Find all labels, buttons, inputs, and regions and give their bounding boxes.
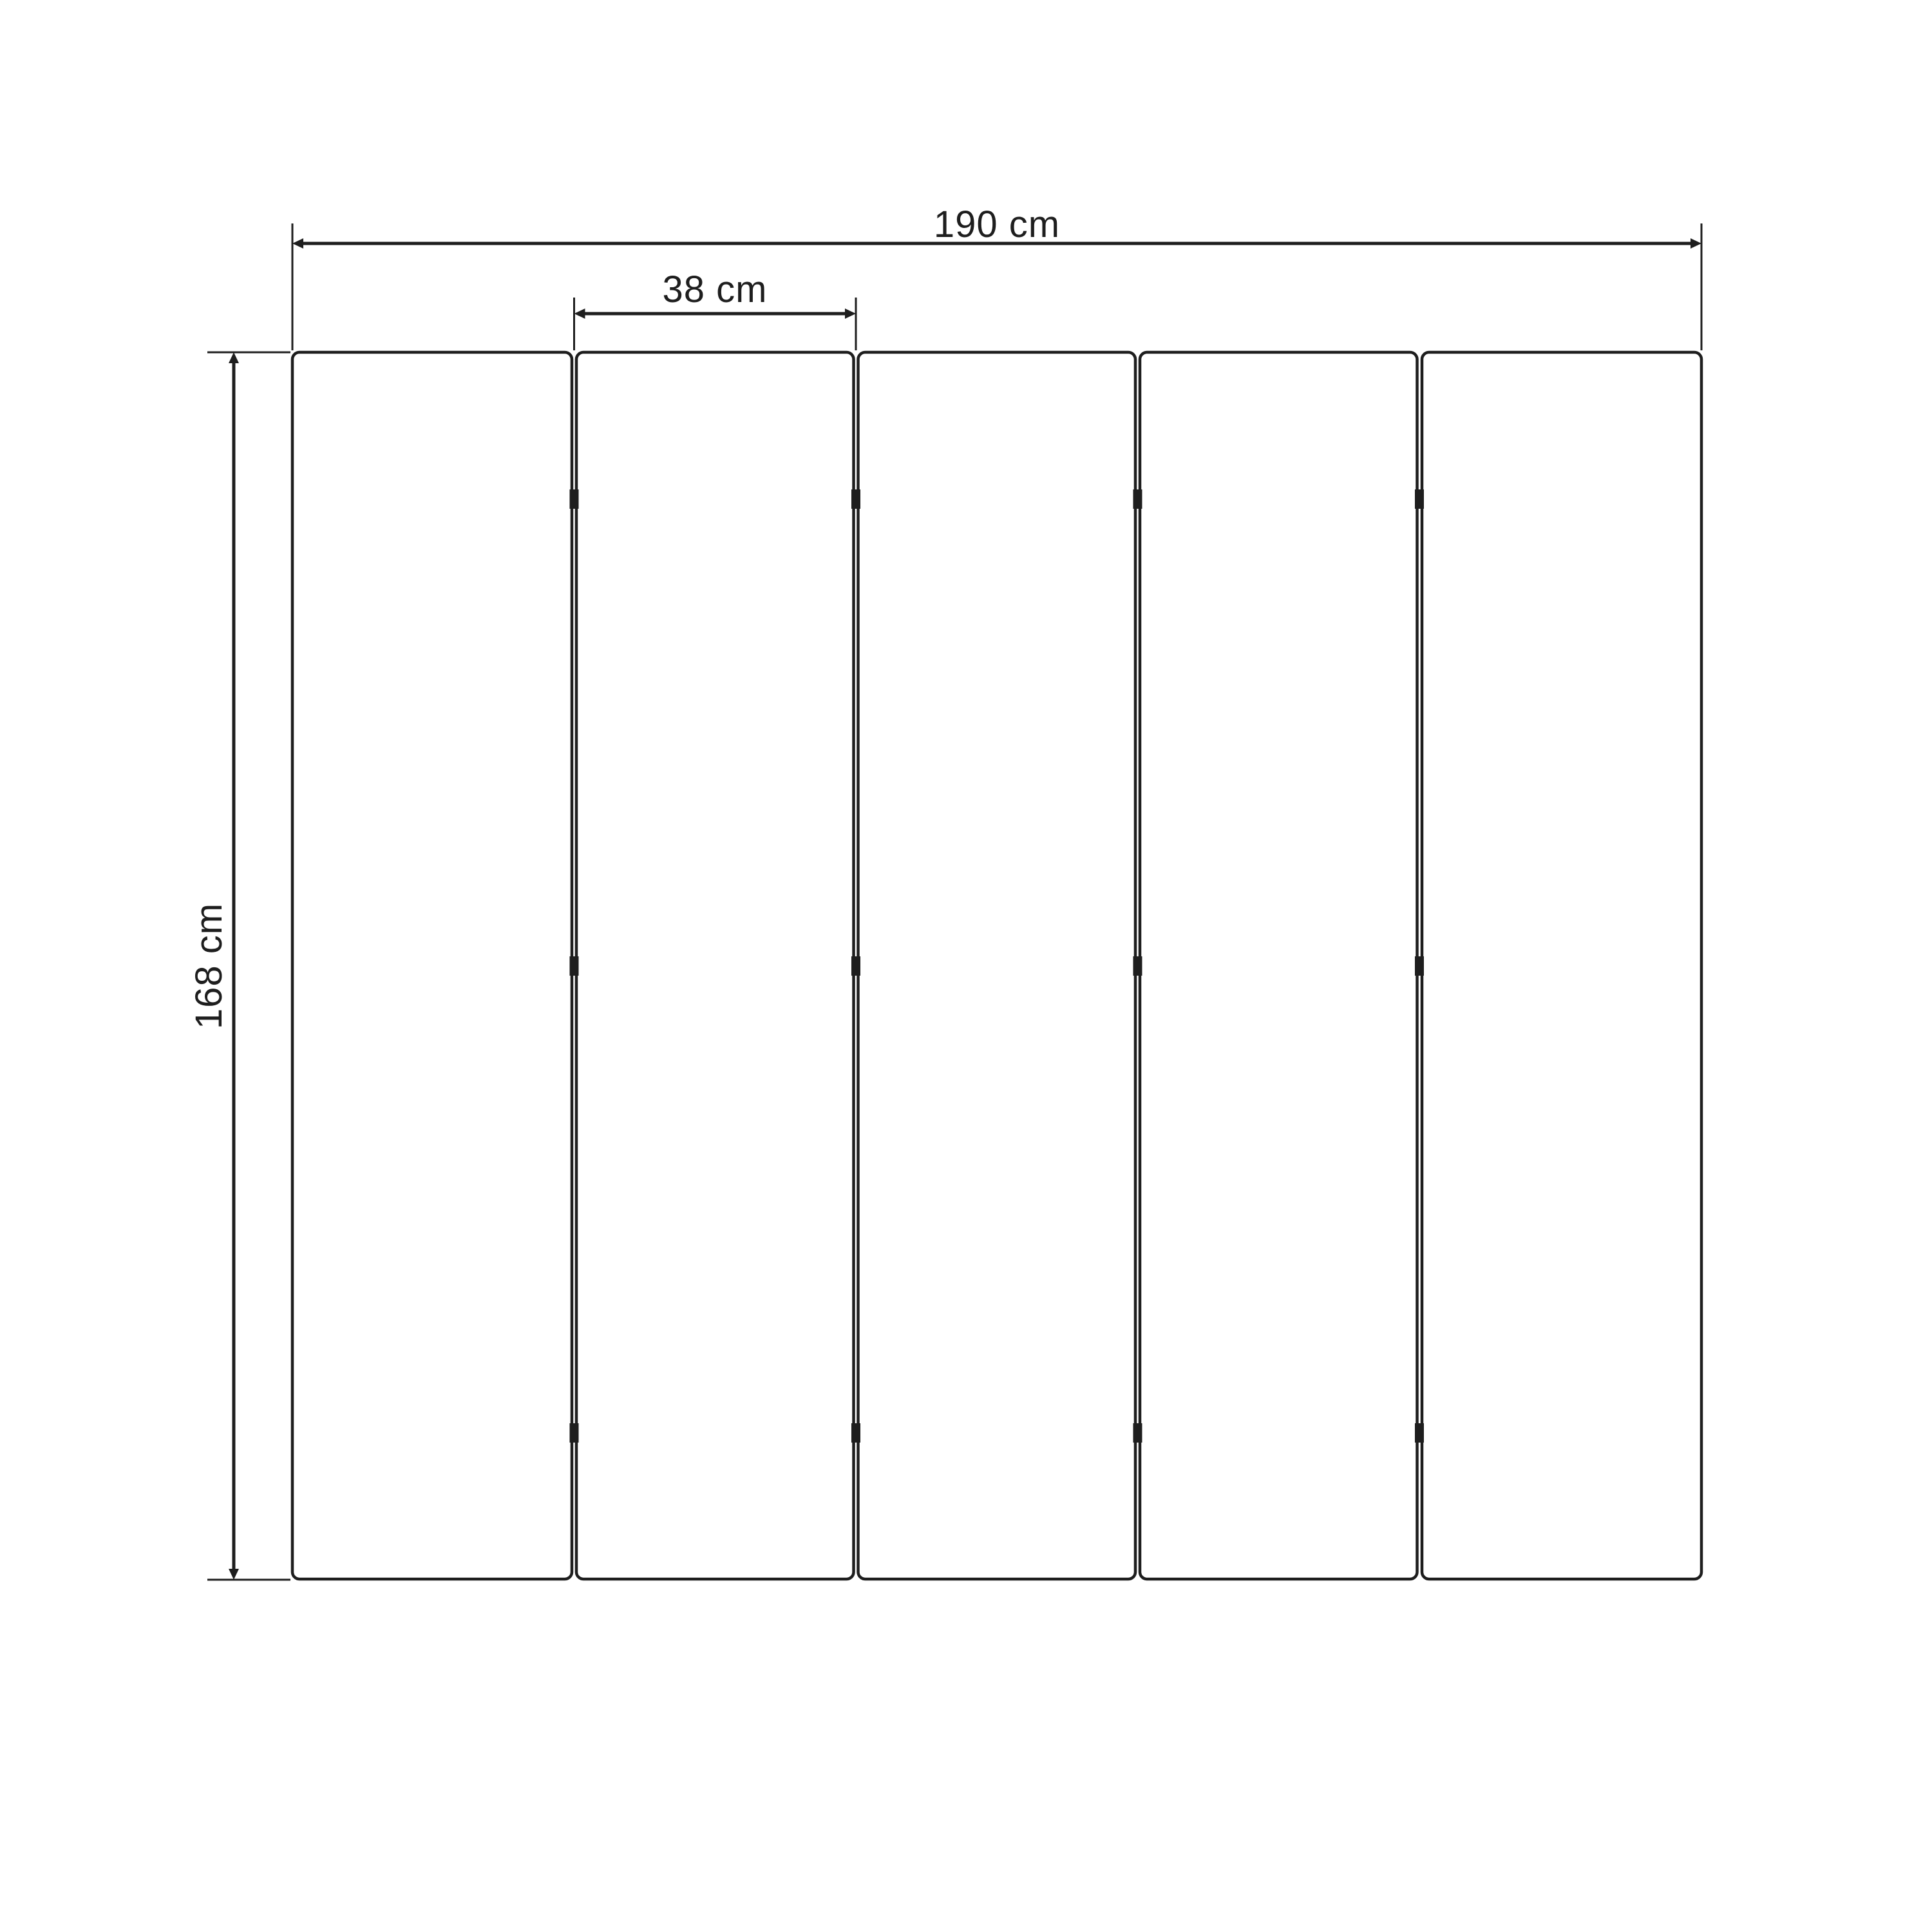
panel-4 [1140,352,1417,1579]
arrow-left-icon [574,308,585,319]
panel-5 [1422,352,1701,1579]
panel-2 [576,352,854,1579]
hinge-gap4-bottom [1415,1423,1424,1443]
arrow-right-icon [1690,238,1701,249]
hinge-gap1-top [570,489,579,509]
hinge-gap3-bottom [1133,1423,1142,1443]
panel-3 [858,352,1136,1579]
hinge-gap2-top [851,489,860,509]
arrow-right-icon [845,308,856,319]
hinge-gap3-middle [1133,956,1142,976]
hinge-gap2-bottom [851,1423,860,1443]
hinge-gap1-middle [570,956,579,976]
panel-1 [292,352,572,1579]
panel-width-label: 38 cm [663,269,768,310]
panel-group [292,352,1701,1579]
hinge-gap2-middle [851,956,860,976]
hinge-gap1-bottom [570,1423,579,1443]
diagram-canvas: 190 cm 38 cm 168 cm [0,0,1932,1932]
hinge-gap3-top [1133,489,1142,509]
arrow-left-icon [292,238,303,249]
height-label: 168 cm [188,903,230,1029]
dimension-height: 168 cm [188,352,290,1580]
dimension-total-width: 190 cm [292,204,1701,350]
folding-screen-dimension-drawing: 190 cm 38 cm 168 cm [0,0,1932,1932]
hinge-gap4-middle [1415,956,1424,976]
hinge-gap4-top [1415,489,1424,509]
arrow-up-icon [229,352,239,363]
dimension-panel-width: 38 cm [574,269,857,350]
total-width-label: 190 cm [934,204,1060,245]
arrow-down-icon [229,1569,239,1580]
